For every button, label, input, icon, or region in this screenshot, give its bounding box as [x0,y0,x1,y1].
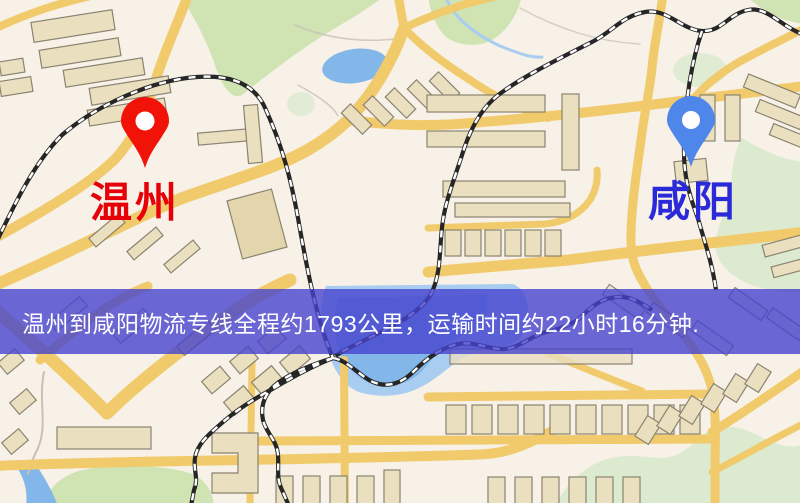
map-canvas [0,0,800,503]
origin-city-label: 温州 [90,182,180,224]
route-info-text: 温州到咸阳物流专线全程约1793公里，运输时间约22小时16分钟. [22,305,699,339]
route-info-banner: 温州到咸阳物流专线全程约1793公里，运输时间约22小时16分钟. [0,289,800,354]
logistics-route-map: 温州 咸阳 温州到咸阳物流专线全程约1793公里，运输时间约22小时16分钟. [0,0,800,503]
pin-hole [136,112,155,131]
destination-city-label: 咸阳 [648,181,738,223]
pin-hole [682,111,700,129]
